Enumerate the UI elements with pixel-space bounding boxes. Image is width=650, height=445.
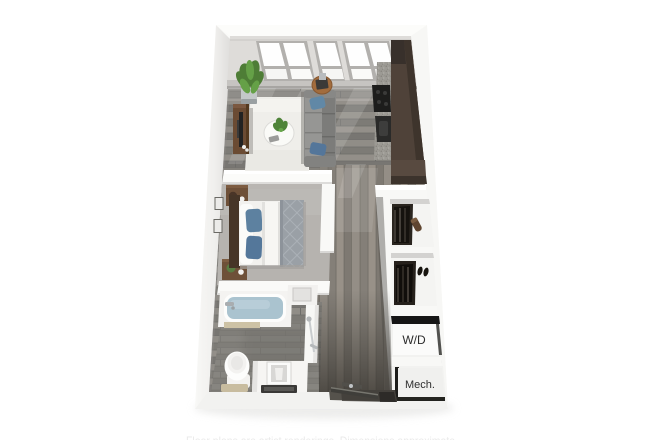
svg-text:W/D: W/D: [402, 333, 426, 347]
svg-text:Floor plans are artist renderi: Floor plans are artist renderings. Dimen…: [186, 434, 458, 440]
svg-text:Mech.: Mech.: [405, 379, 435, 391]
